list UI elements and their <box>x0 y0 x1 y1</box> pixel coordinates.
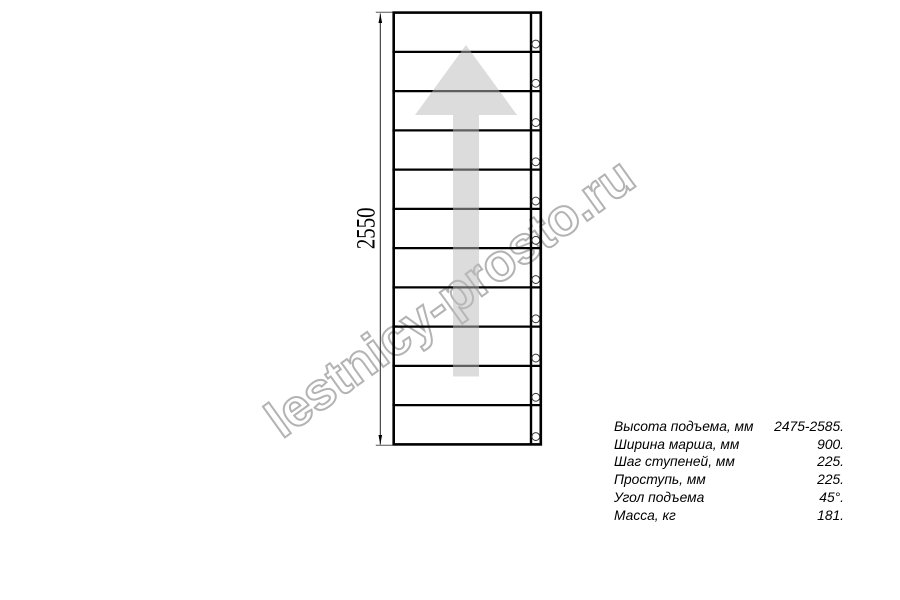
svg-text:lestnicy-prosto.ru: lestnicy-prosto.ru <box>255 147 645 449</box>
svg-text:2550: 2550 <box>352 208 381 250</box>
